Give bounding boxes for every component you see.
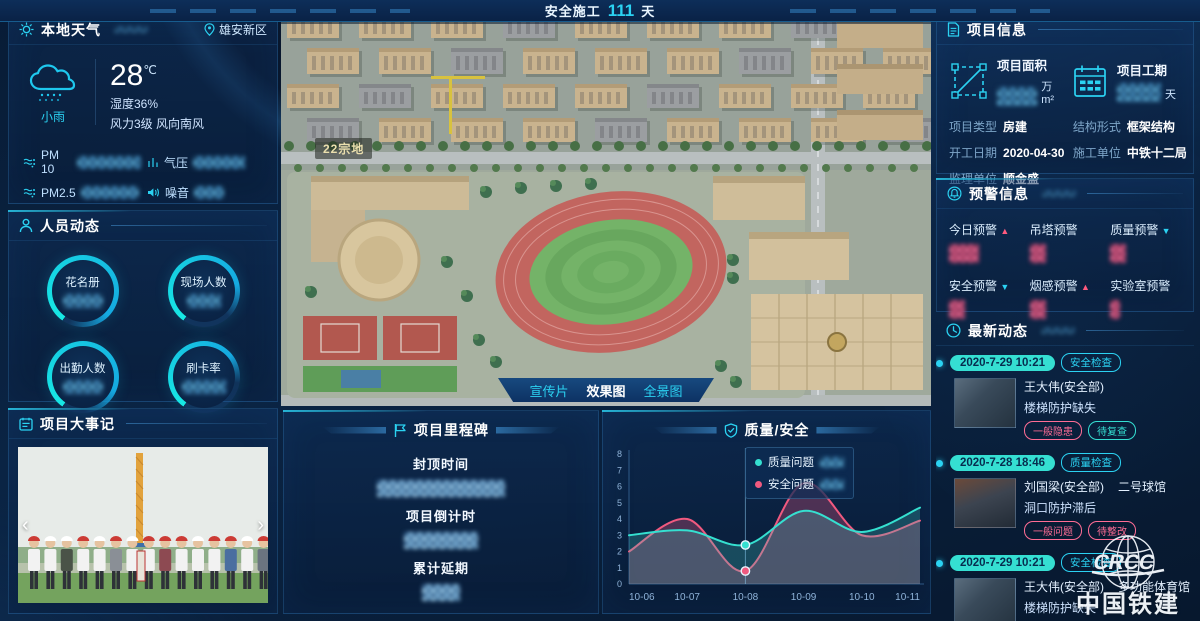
timeline-dot [936,360,943,367]
metric-label: 噪音 [165,184,189,201]
personnel-gauges: 花名册现场人数出勤人数刷卡率 [9,241,277,413]
gauge-label: 现场人数 [181,274,227,290]
svg-text:2: 2 [617,547,622,557]
weather-panel: 本地天气 雄安新区 小雨 28℃ 湿度36% 风力3级 风向南风 PM 10气压… [8,14,278,204]
header-line [1087,193,1183,194]
alarm-bell-icon [947,186,962,201]
header-line [1086,330,1184,331]
project-info-panel: 项目信息 项目面积 万m² 项目工期 天 项目类型房建结构形式框架结构开工日期2… [936,14,1194,174]
metric-value-redacted [193,156,245,169]
trend-down-icon: ▼ [1162,226,1171,236]
chart-title: 质量/安全 [745,420,810,440]
dust-icon [23,157,36,168]
gauge-value-redacted [187,294,221,308]
weather-metric: 气压 [147,148,265,176]
warning-实验室预警[interactable]: 实验室预警 [1110,277,1185,319]
legend-value-redacted [820,457,844,468]
svg-text:6: 6 [617,482,622,492]
milestone-list: 封顶时间项目倒计时累计延期 [284,440,598,601]
warning-label: 吊塔预警 [1030,221,1105,238]
event-photo-carousel[interactable]: ‹ › [18,447,268,603]
milestone-value-redacted [422,584,460,601]
feed-photo[interactable] [954,378,1016,428]
timeline-dot [936,560,943,567]
personnel-title: 人员动态 [40,216,100,236]
header-line [1038,29,1183,30]
warning-value-redacted [949,244,979,263]
flag-icon [393,423,407,438]
chart-tooltip: 质量问题安全问题 [745,447,854,499]
warning-吊塔预警[interactable]: 吊塔预警 [1030,221,1105,263]
feed-issue: 楼梯防护缺失 [1024,399,1136,416]
milestone-item: 项目倒计时 [404,506,478,549]
feed-person: 王大伟(安全部) [1024,378,1136,395]
warning-质量预警[interactable]: 质量预警 ▼ [1110,221,1185,263]
warning-header: 预警信息 [937,179,1193,209]
feed-person: 刘国梁(安全部)二号球馆 [1024,478,1166,495]
weather-readings: 28℃ 湿度36% 风力3级 风向南风 [110,59,204,132]
crcc-logo: CRCC 中国铁建 [1062,533,1194,619]
sun-gear-icon [19,22,34,37]
field-value: 中铁十二局 [1127,146,1187,160]
safe-days-unit: 天 [641,1,655,20]
project-fields: 项目类型房建结构形式框架结构开工日期2020-04-30施工单位中铁十二局监理单… [937,108,1193,187]
air-metrics: PM 10气压PM2.5噪音 [9,138,277,201]
feed-date: 2020-7-29 10:21 [950,355,1055,371]
svg-text:10-07: 10-07 [674,592,700,603]
metric-value-redacted [194,186,224,199]
milestone-header: 项目里程碑 [284,411,598,440]
crcc-name: 中国铁建 [1062,584,1194,619]
milestone-item: 封顶时间 [377,454,505,497]
feed-type-badge: 安全检查 [1061,353,1121,372]
calendar-note-icon [19,417,33,431]
header-line [126,423,267,424]
humidity-text: 湿度36% [110,95,204,112]
tag-待复查: 待复查 [1088,421,1136,440]
noise-icon [147,187,160,198]
legend-安全问题: 安全问题 [755,476,844,492]
field-value: 框架结构 [1127,120,1175,134]
svg-text:5: 5 [617,498,622,508]
area-value-redacted [997,87,1037,106]
feed-tags: 一般隐患待复查 [1024,421,1136,440]
carousel-next-arrow[interactable]: › [257,515,264,535]
svg-text:4: 4 [617,514,622,524]
feed-text: 刘国梁(安全部)二号球馆洞口防护滞后一般问题待整改 [1024,478,1166,540]
svg-text:10-08: 10-08 [733,592,759,603]
weather-condition: 小雨 [27,59,96,125]
warning-value-redacted [1030,244,1046,263]
legend-label: 质量问题 [768,454,814,470]
legend-dot [755,481,762,488]
gauge-出勤人数[interactable]: 出勤人数 [47,341,119,413]
weather-metric: PM2.5 [23,184,141,201]
dust-icon [23,187,36,198]
project-info-title: 项目信息 [967,20,1027,40]
field-label: 结构形式 [1073,120,1121,134]
gauge-现场人数[interactable]: 现场人数 [168,255,240,327]
calendar-icon [1071,62,1109,100]
feed-date: 2020-7-29 10:21 [950,555,1055,571]
header-wing [496,427,560,434]
feed-item[interactable]: 2020-7-29 10:21安全检查王大伟(安全部)楼梯防护缺失一般隐患待复查 [936,348,1194,448]
metric-label: PM2.5 [41,186,76,200]
milestone-title: 项目里程碑 [414,420,489,440]
header-wing [322,427,386,434]
rain-cloud-icon [27,61,79,105]
gauge-label: 花名册 [65,274,100,290]
feed-photo[interactable] [954,478,1016,528]
weather-title: 本地天气 [41,20,101,40]
gauge-value-redacted [63,294,103,308]
milestone-label: 封顶时间 [413,454,469,473]
header-decor [1042,190,1076,197]
svg-text:1: 1 [617,563,622,573]
feed-issue: 洞口防护滞后 [1024,499,1166,516]
warning-title: 预警信息 [969,184,1029,204]
clock-icon [946,323,961,338]
svg-text:8: 8 [617,449,622,459]
trend-up-icon: ▲ [1081,282,1090,292]
site-3d-render[interactable]: 22宗地 宣传片效果图全景图 [281,10,931,406]
tag-一般隐患: 一般隐患 [1024,421,1082,440]
field-项目类型: 项目类型房建 [949,118,1069,135]
view-btn-效果图[interactable]: 效果图 [586,381,625,400]
svg-text:7: 7 [617,465,622,475]
milestone-value-redacted [377,480,505,497]
header-wing [816,427,880,434]
person-name: 刘国梁(安全部) [1024,478,1104,495]
chart-header: 质量/安全 [603,411,930,440]
warning-value-redacted [1110,244,1126,263]
field-开工日期: 开工日期2020-04-30 [949,144,1069,161]
field-value: 2020-04-30 [1003,146,1064,160]
svg-text:10-11: 10-11 [895,592,920,603]
feed-type-badge: 质量检查 [1061,453,1121,472]
carousel-prev-arrow[interactable]: ‹ [22,515,29,535]
area-label: 项目面积 [997,55,1063,74]
quality-safety-panel: 质量/安全 01234567810-0610-0710-0810-0910-10… [602,410,931,614]
legend-质量问题: 质量问题 [755,454,844,470]
milestone-label: 累计延期 [413,558,469,577]
svg-text:0: 0 [617,579,622,589]
project-area-stat: 项目面积 万m² [949,55,1063,106]
milestone-value-redacted [404,532,478,549]
trend-up-icon: ▲ [1000,226,1009,236]
svg-text:10-06: 10-06 [629,592,655,603]
events-title: 项目大事记 [40,414,115,434]
svg-text:10-09: 10-09 [791,592,817,603]
warning-今日预警[interactable]: 今日预警 ▲ [949,221,1024,263]
feed-item-body: 刘国梁(安全部)二号球馆洞口防护滞后一般问题待整改 [950,478,1194,540]
feed-item-header: 2020-7-28 18:46质量检查 [950,453,1194,472]
feed-date: 2020-7-28 18:46 [950,455,1055,471]
location-badge[interactable]: 雄安新区 [204,21,267,38]
feed-header: 最新动态 [936,316,1194,346]
crcc-abbr: CRCC [1091,551,1156,574]
feed-item-body: 王大伟(安全部)楼梯防护缺失一般隐患待复查 [950,378,1194,440]
gauge-value-redacted [182,380,226,394]
shield-check-icon [724,423,738,438]
duration-unit: 天 [1165,86,1176,102]
legend-dot [755,459,762,466]
timeline-dot [936,460,943,467]
gauge-label: 刷卡率 [186,360,221,376]
warning-label: 今日预警 ▲ [949,221,1024,238]
field-label: 项目类型 [949,120,997,134]
milestone-panel: 项目里程碑 封顶时间项目倒计时累计延期 [283,410,599,614]
header-line [111,225,267,226]
warning-label: 安全预警 ▼ [949,277,1024,294]
legend-value-redacted [820,479,844,490]
weather-metric: 噪音 [147,184,265,201]
metric-value-redacted [77,156,141,169]
metric-label: PM 10 [41,148,72,176]
location-name: 雄安新区 [219,21,267,38]
field-施工单位: 施工单位中铁十二局 [1073,144,1187,161]
feed-title: 最新动态 [968,321,1028,341]
top-status-bar: 安全施工 111 天 [0,0,1200,22]
project-stats: 项目面积 万m² 项目工期 天 [937,45,1193,108]
view-btn-全景图[interactable]: 全景图 [644,381,683,400]
gauge-刷卡率[interactable]: 刷卡率 [168,341,240,413]
gauge-value-redacted [63,380,103,394]
warning-label: 烟感预警 ▲ [1030,277,1105,294]
personnel-panel: 人员动态 花名册现场人数出勤人数刷卡率 [8,210,278,402]
weather-main: 小雨 28℃ 湿度36% 风力3级 风向南风 [9,45,277,138]
field-结构形式: 结构形式框架结构 [1073,118,1187,135]
field-label: 开工日期 [949,146,997,160]
plot-label: 22宗地 [315,138,372,159]
wind-text: 风力3级 风向南风 [110,115,204,132]
milestone-item: 累计延期 [413,558,469,601]
warning-grid: 今日预警 ▲吊塔预警 质量预警 ▼安全预警 ▼烟感预警 ▲实验室预警 [937,209,1193,319]
condition-label: 小雨 [41,108,65,125]
person-icon [19,218,33,233]
header-decor [1041,327,1075,334]
trend-down-icon: ▼ [1000,282,1009,292]
header-decor [114,26,148,33]
location-pin-icon [204,23,215,36]
field-label: 施工单位 [1073,146,1121,160]
project-duration-stat: 项目工期 天 [1071,55,1185,106]
pressure-icon [147,157,159,168]
person-name: 王大伟(安全部) [1024,378,1104,395]
site-render-image [281,10,931,406]
feed-location: 二号球馆 [1118,478,1166,495]
temperature-value: 28℃ [110,59,204,92]
duration-value-redacted [1117,83,1161,102]
view-switcher: 宣传片效果图全景图 [498,378,714,402]
group-photo [18,447,268,603]
gauge-label: 出勤人数 [60,360,106,376]
duration-label: 项目工期 [1117,60,1176,79]
header-wing [653,427,717,434]
temperature-unit: ℃ [143,63,156,77]
metric-value-redacted [81,186,139,199]
document-icon [947,22,960,37]
legend-label: 安全问题 [768,476,814,492]
milestone-photo-panel: 项目大事记 ‹ › [8,408,278,614]
metric-label: 气压 [164,154,188,171]
milestone-label: 项目倒计时 [406,506,476,525]
warning-panel: 预警信息 今日预警 ▲吊塔预警 质量预警 ▼安全预警 ▼烟感预警 ▲实验室预警 [936,178,1194,312]
view-btn-宣传片[interactable]: 宣传片 [529,381,568,400]
gauge-花名册[interactable]: 花名册 [47,255,119,327]
warning-label: 实验室预警 [1110,277,1185,294]
svg-text:3: 3 [617,530,622,540]
field-value: 房建 [1003,120,1027,134]
svg-text:10-10: 10-10 [849,592,875,603]
weather-metric: PM 10 [23,148,141,176]
area-icon [949,61,989,101]
area-unit: 万m² [1041,78,1063,106]
events-header: 项目大事记 [9,409,277,439]
feed-photo[interactable] [954,578,1016,621]
warning-安全预警[interactable]: 安全预警 ▼ [949,277,1024,319]
warning-烟感预警[interactable]: 烟感预警 ▲ [1030,277,1105,319]
warning-label: 质量预警 ▼ [1110,221,1185,238]
feed-text: 王大伟(安全部)楼梯防护缺失一般隐患待复查 [1024,378,1136,440]
feed-item-header: 2020-7-29 10:21安全检查 [950,353,1194,372]
safe-days-count: 111 [608,2,635,19]
personnel-header: 人员动态 [9,211,277,241]
safe-days-label: 安全施工 [545,1,601,20]
